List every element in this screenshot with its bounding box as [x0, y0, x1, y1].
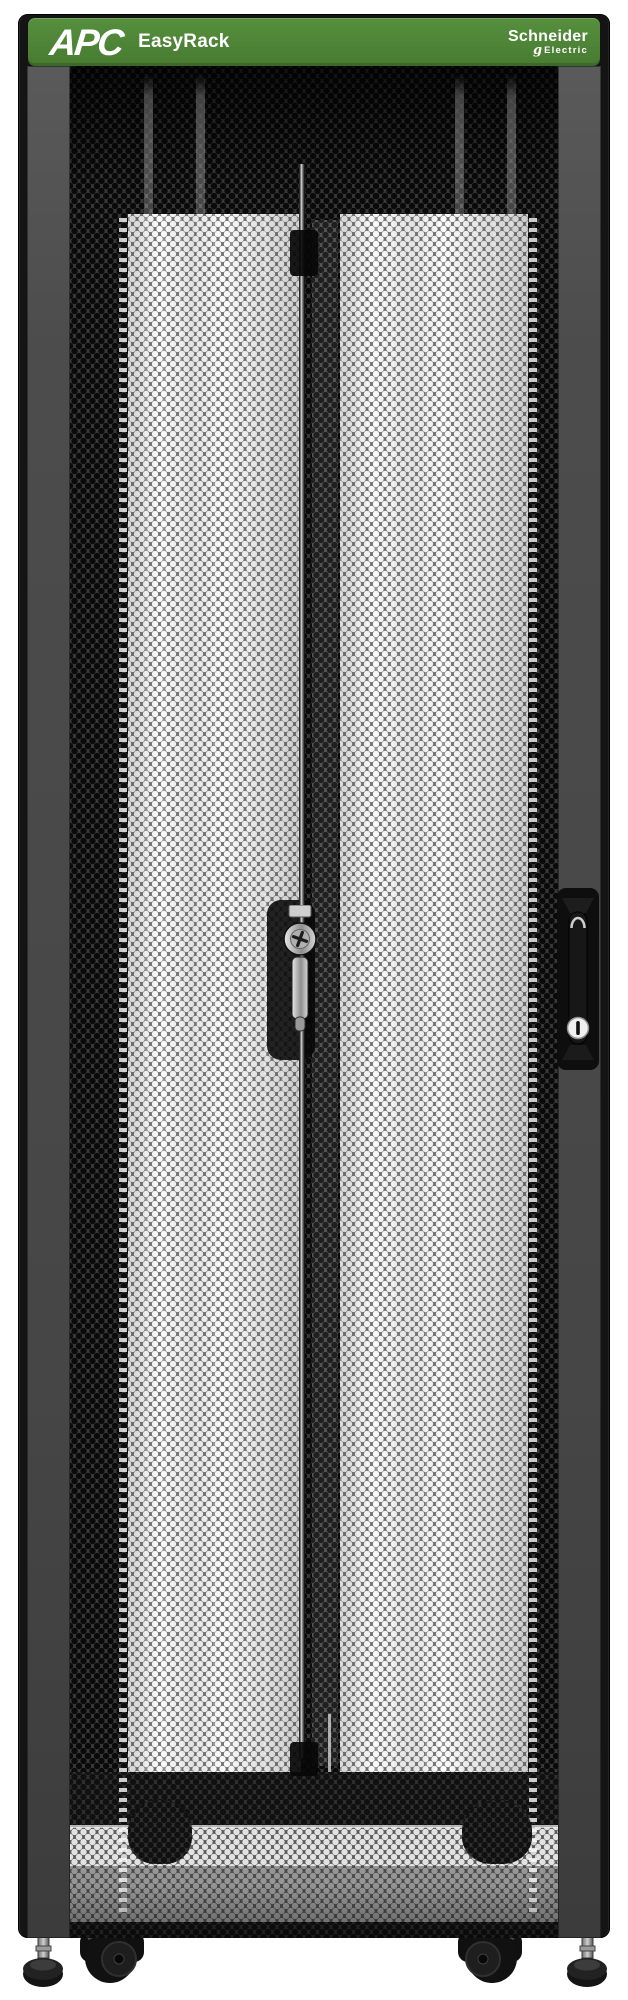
vent-panel-right [340, 214, 528, 1772]
rod-bottom-highlight [328, 1714, 331, 1772]
leveling-foot-left [22, 1932, 66, 1990]
caster-wheel-left [74, 1932, 150, 1992]
brand-band: APC EasyRack Schneider g Electric [28, 18, 600, 66]
panel-edge-dashes-left [119, 218, 127, 1918]
product-name-label: EasyRack [138, 31, 229, 53]
handle-lock-icon [568, 1018, 589, 1039]
frame-left [27, 66, 70, 1938]
rod-bracket-bottom [290, 1742, 318, 1776]
rack-cabinet: APC EasyRack Schneider g Electric [18, 14, 610, 1938]
mesh-door [70, 66, 558, 1938]
apc-logo: APC [48, 24, 124, 61]
schneider-electric-logo: Schneider g Electric [508, 29, 588, 56]
leveling-foot-right [566, 1932, 610, 1990]
rod-bracket-top [290, 230, 318, 276]
center-lock-icon [279, 905, 321, 1037]
schneider-mark-icon: g [533, 46, 542, 55]
bottom-plinth-strip [70, 1866, 558, 1922]
schneider-wordmark: Schneider [508, 29, 588, 45]
wheel-silhouette-left [128, 1800, 192, 1864]
caster-wheel-right [452, 1932, 528, 1992]
wheel-silhouette-right [462, 1800, 532, 1864]
panel-edge-dashes-right [529, 218, 537, 1918]
electric-wordmark: Electric [544, 46, 588, 56]
bottom-lower-strip [70, 1922, 558, 1938]
panel-shading [340, 214, 528, 1772]
door-handle [556, 886, 604, 1072]
product-photo-apc-easyrack: APC EasyRack Schneider g Electric [0, 0, 628, 2000]
